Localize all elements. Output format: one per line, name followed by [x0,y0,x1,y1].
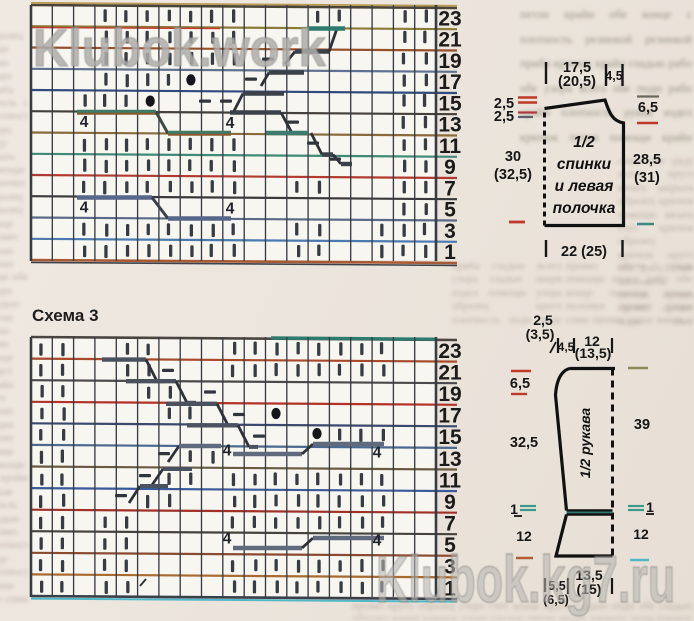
svg-text:(32,5): (32,5) [494,167,532,183]
svg-text:23: 23 [438,340,461,363]
svg-text:22 (25): 22 (25) [561,244,607,260]
svg-text:21: 21 [438,29,462,52]
svg-text:15: 15 [438,426,462,449]
svg-text:1: 1 [646,499,654,515]
svg-text:32,5: 32,5 [510,435,538,451]
svg-text:19: 19 [438,50,461,73]
svg-text:1/2 рукава: 1/2 рукава [577,408,593,479]
svg-text:17: 17 [438,405,461,428]
svg-text:1: 1 [510,501,518,517]
svg-text:12: 12 [633,526,649,542]
svg-text:21: 21 [438,362,462,385]
svg-text:17: 17 [438,71,461,94]
svg-text:спинки: спинки [557,156,612,173]
svg-text:23: 23 [438,7,461,30]
svg-text:4,5: 4,5 [605,69,622,83]
svg-text:9: 9 [444,156,456,179]
svg-text:4: 4 [373,445,382,462]
svg-text:19: 19 [438,383,461,406]
svg-text:30: 30 [505,149,521,165]
svg-text:1: 1 [444,241,456,264]
svg-text:(3,5): (3,5) [526,326,555,342]
svg-text:6,5: 6,5 [510,376,530,392]
svg-text:11: 11 [439,469,462,492]
svg-text:4: 4 [223,443,232,460]
svg-text:39: 39 [634,417,650,433]
svg-text:4: 4 [80,114,89,131]
svg-text:15: 15 [438,92,462,115]
svg-text:(13,5): (13,5) [575,345,612,361]
svg-text:28,5: 28,5 [633,152,661,168]
svg-text:и левая: и левая [555,178,614,195]
svg-text:4: 4 [223,531,232,548]
svg-text:13: 13 [438,448,461,471]
svg-text:1/2: 1/2 [573,134,595,151]
svg-text:7: 7 [444,177,456,200]
svg-text:13: 13 [438,114,461,137]
svg-text:4: 4 [226,115,235,132]
svg-text:4: 4 [80,200,89,217]
svg-text:(20,5): (20,5) [558,74,596,90]
svg-text:11: 11 [439,135,462,158]
svg-text:4: 4 [226,201,235,218]
svg-text:2,5: 2,5 [494,109,514,125]
svg-text:(31): (31) [634,170,660,186]
svg-text:9: 9 [444,491,456,514]
svg-text:7: 7 [444,513,456,536]
svg-text:полочка: полочка [553,200,616,217]
svg-text:3: 3 [444,220,456,243]
svg-text:4,5: 4,5 [558,340,575,354]
svg-text:5: 5 [444,199,456,222]
svg-text:6,5: 6,5 [638,100,658,116]
